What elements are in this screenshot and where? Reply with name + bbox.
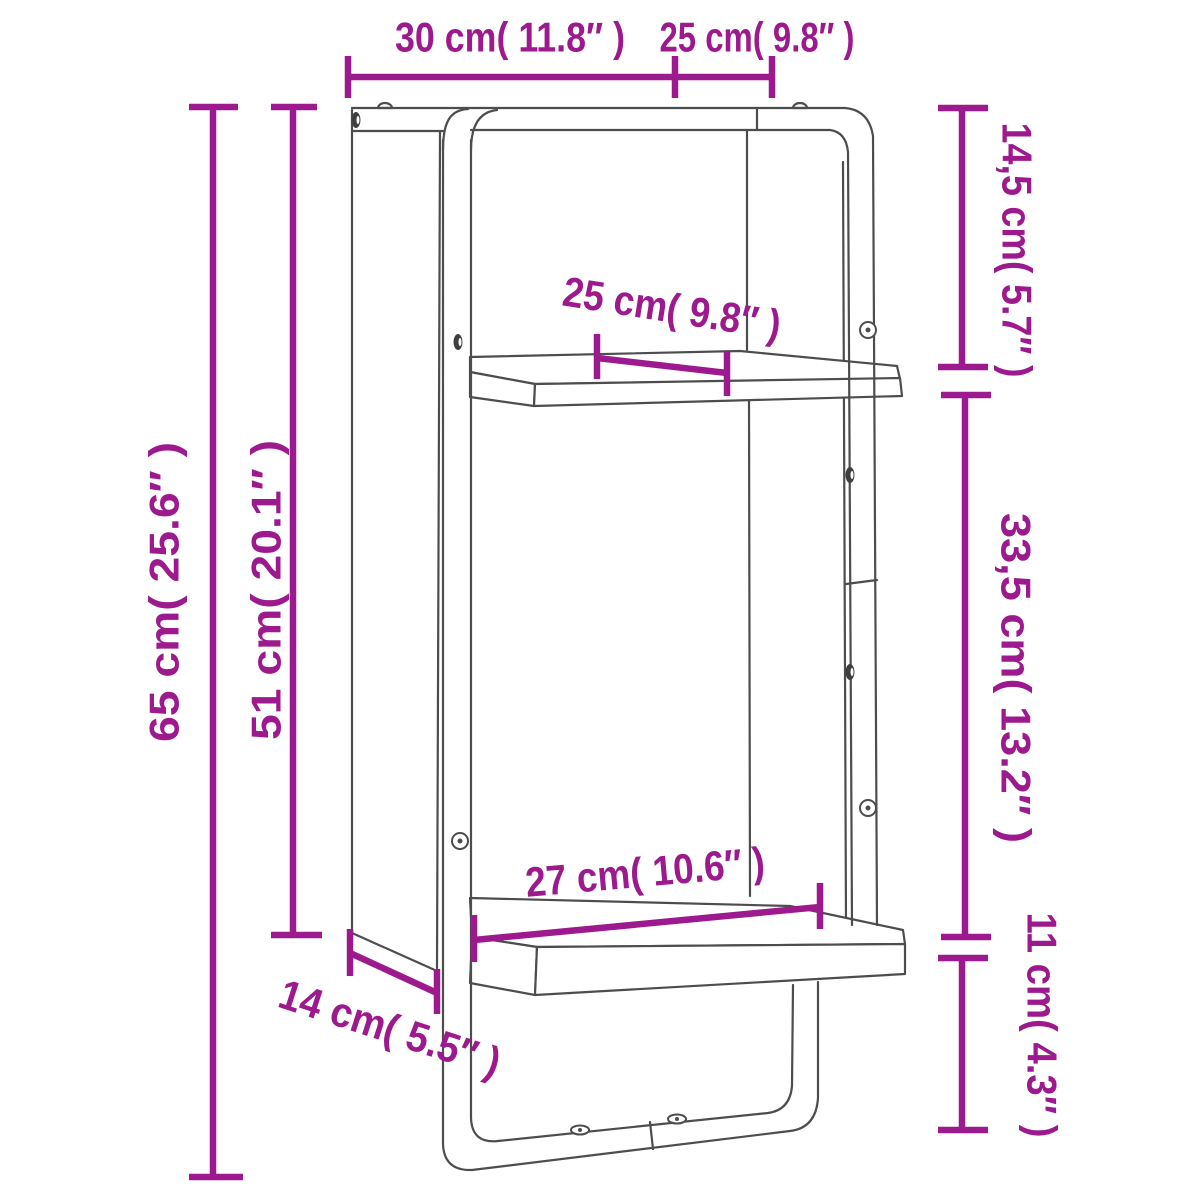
screw-highlight <box>851 471 854 479</box>
dimension-annotations: 30 cm( 11.8″ ) 25 cm( 9.8″ ) 65 cm( 25.6… <box>141 14 1066 1178</box>
screw-center <box>578 1128 582 1132</box>
top-bar-inner-edge <box>471 130 852 925</box>
dimension-line <box>350 953 437 993</box>
top-bar-outer-edge <box>352 108 877 925</box>
dim-left-total-height: 65 cm( 25.6″ ) <box>141 107 244 1177</box>
left-wall-strip <box>352 110 440 971</box>
screw-center <box>866 806 871 811</box>
dim-right-middle: 33,5 cm( 13.2″ ) <box>941 395 1040 937</box>
dimension-label: 27 cm( 10.6″ ) <box>523 838 766 906</box>
wall-shelf-dimension-diagram: 30 cm( 11.8″ ) 25 cm( 9.8″ ) 65 cm( 25.6… <box>0 0 1200 1200</box>
dimension-label: 25 cm( 9.8″ ) <box>660 14 855 61</box>
left-bar-bend-outer <box>443 109 468 150</box>
right-strip-edge <box>747 130 846 925</box>
dim-right-lower: 11 cm( 4.3″ ) <box>938 913 1066 1138</box>
screw-highlight <box>851 668 854 676</box>
screw-highlight <box>357 116 360 124</box>
bottom-shelf-front-face <box>535 944 905 995</box>
right-wall-strip <box>747 130 846 925</box>
screw-highlight <box>459 338 462 346</box>
dimension-label: 25 cm( 9.8″ ) <box>560 268 785 349</box>
middle-shelf <box>470 351 902 406</box>
screw-center <box>866 328 871 333</box>
screw-icon <box>793 103 807 108</box>
bottom-shelf-left-face <box>470 937 537 995</box>
dimension-label: 14,5 cm( 5.7″ ) <box>994 123 1041 378</box>
screw-icon <box>378 103 392 108</box>
dim-right-upper: 14,5 cm( 5.7″ ) <box>938 108 1041 378</box>
frame-bar-loop <box>352 108 877 1170</box>
left-strip-outline <box>352 110 440 971</box>
dimension-label: 51 cm( 20.1″ ) <box>243 440 290 740</box>
dim-top-width: 30 cm( 11.8″ ) 25 cm( 9.8″ ) <box>348 14 855 99</box>
screw-center <box>675 1117 679 1121</box>
dimension-label: 33,5 cm( 13.2″ ) <box>993 513 1040 843</box>
dimension-label: 30 cm( 11.8″ ) <box>395 14 625 61</box>
middle-shelf-front-face <box>534 378 902 406</box>
dimension-label: 65 cm( 25.6″ ) <box>141 442 188 742</box>
bottom-shelf <box>470 898 905 995</box>
dimension-label: 11 cm( 4.3″ ) <box>1019 913 1066 1138</box>
dim-left-inner-height: 51 cm( 20.1″ ) <box>243 107 323 935</box>
screw-center <box>458 839 463 844</box>
diagram-canvas: 30 cm( 11.8″ ) 25 cm( 9.8″ ) 65 cm( 25.6… <box>0 0 1200 1200</box>
